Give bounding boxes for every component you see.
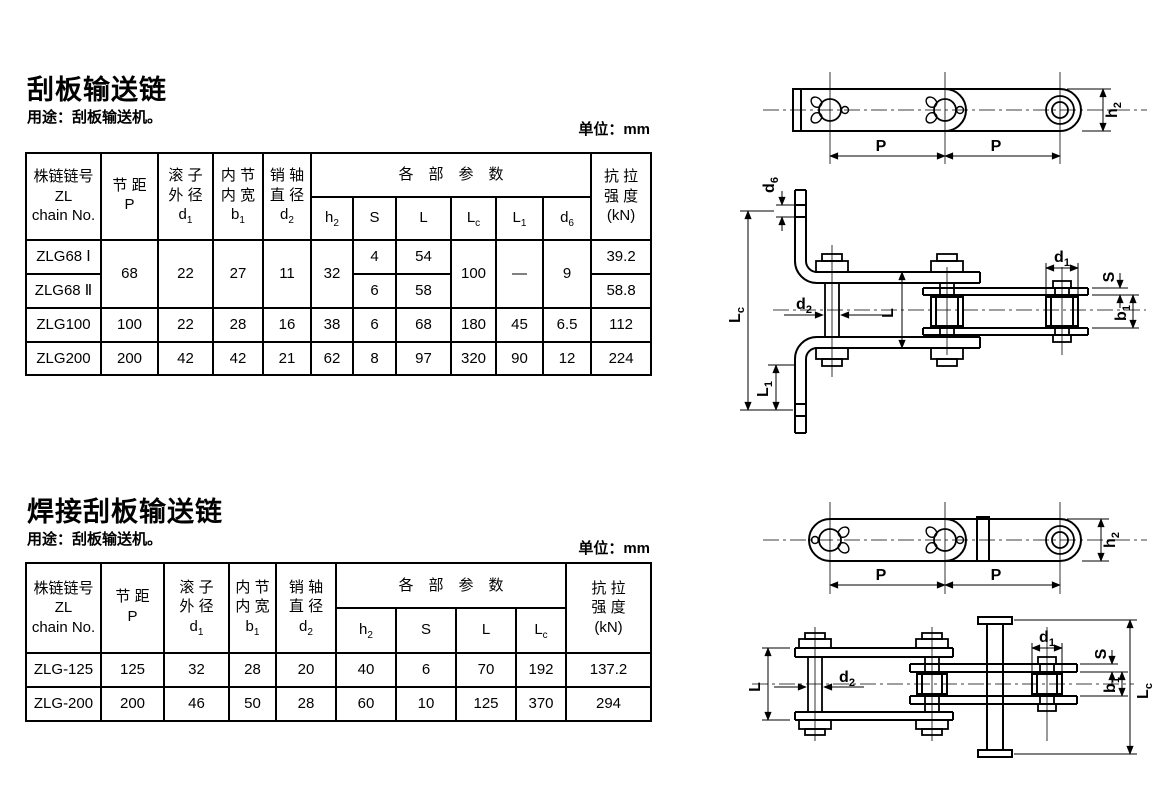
col-header-chain-no: 株链链号 ZL chain No. [26,563,101,653]
dim-label-l: L [880,308,897,318]
dim-label-lc: Lc [727,307,747,323]
dim-label-d6: d6 [761,177,781,193]
col-header-roller-dia: 滚 子 外 径 d1 [164,563,229,653]
col-header-roller-dia: 滚 子 外 径 d1 [158,153,213,240]
dim-label-d1: d1 [1054,249,1070,269]
table-row: ZLG-200 200 46 50 28 60 10 125 370 294 [26,687,651,721]
cell-chain-no: ZLG68 Ⅱ [26,274,101,308]
dimension-d6 [776,191,795,231]
col-header-d6: d6 [543,197,591,240]
table-row: ZLG-125 125 32 28 20 40 6 70 192 137.2 [26,653,651,687]
dim-label-d2: d2 [839,669,855,689]
col-header-l1: L1 [496,197,543,240]
col-header-params-group: 各 部 参 数 [311,153,591,197]
col-header-s: S [396,608,456,653]
table-row: ZLG200 200 42 42 21 62 8 97 320 90 12 22… [26,342,651,375]
centerlines [773,245,1146,377]
col-header-inner-width: 内 节 内 宽 b1 [229,563,276,653]
col-header-l: L [396,197,451,240]
dim-label-l: L [747,682,764,692]
table-row: ZLG100 100 22 28 16 38 6 68 180 45 6.5 1… [26,308,651,342]
catalog-page: { "section1": { "title": "刮板输送链", "usage… [0,0,1158,791]
col-header-chain-no: 株链链号 ZL chain No. [26,153,101,240]
welded-bar [978,617,1012,757]
col-header-lc: Lc [516,608,566,653]
table-header-row-1: 株链链号 ZL chain No. 节 距 P 滚 子 外 径 d1 内 节 内… [26,153,651,197]
diagram-chain-side-view: P P h2 [755,60,1155,175]
section2-unit-label: 单位：mm [530,537,650,558]
col-header-l: L [456,608,516,653]
diagram-scraper-assembly: d6 Lc L1 d2 L d1 S b1 [718,165,1158,450]
dim-label-d2: d2 [796,296,812,316]
col-header-s: S [353,197,396,240]
inner-link-plates [923,288,1088,335]
diagram-welded-chain-side-view: P P h2 [755,492,1155,602]
dimension-lc [740,211,793,410]
table-row: ZLG68 Ⅰ 68 22 27 11 32 4 54 100 — 9 39.2 [26,240,651,274]
dim-label-p1: P [876,138,887,155]
col-header-inner-width: 内 节 内 宽 b1 [213,153,263,240]
section2-title: 焊接刮板输送链 [27,490,223,529]
dim-label-p2: P [991,567,1002,584]
dim-label-p1: P [876,567,887,584]
table-header-row-1: 株链链号 ZL chain No. 节 距 P 滚 子 外 径 d1 内 节 内… [26,563,651,608]
section2-usage: 用途：刮板输送机。 [27,528,162,549]
col-header-lc: Lc [451,197,496,240]
centerlines [763,72,1147,164]
col-header-pitch: 节 距 P [101,563,164,653]
col-header-pitch: 节 距 P [101,153,158,240]
col-header-strength: 抗 拉 强 度 (kN) [591,153,651,240]
cell-chain-no: ZLG-200 [26,687,101,721]
cell-chain-no: ZLG68 Ⅰ [26,240,101,274]
cell-chain-no: ZLG100 [26,308,101,342]
diagram-welded-assembly: L d2 d1 S b1 Lc [722,595,1158,791]
col-header-params-group: 各 部 参 数 [336,563,566,608]
dim-label-l1: L1 [755,381,775,397]
dim-label-s: S [1093,648,1110,659]
dim-label-p2: P [991,138,1002,155]
table-welded-scraper-chain: 株链链号 ZL chain No. 节 距 P 滚 子 外 径 d1 内 节 内… [25,562,652,722]
col-header-strength: 抗 拉 强 度 (kN) [566,563,651,653]
col-header-h2: h2 [311,197,353,240]
cell-chain-no: ZLG-125 [26,653,101,687]
section1-usage: 用途：刮板输送机。 [27,106,162,127]
dim-label-s: S [1101,271,1118,282]
dim-label-b1: b1 [1102,677,1122,693]
dim-label-lc: Lc [1135,683,1155,699]
col-header-pin-dia: 销 轴 直 径 d2 [276,563,336,653]
cell-chain-no: ZLG200 [26,342,101,375]
rollers [931,297,1078,326]
section1-unit-label: 单位：mm [530,118,650,139]
col-header-h2: h2 [336,608,396,653]
welded-bar [977,517,989,561]
col-header-pin-dia: 销 轴 直 径 d2 [263,153,311,240]
dim-label-b1: b1 [1113,305,1133,321]
table-scraper-chain: 株链链号 ZL chain No. 节 距 P 滚 子 外 径 d1 内 节 内… [25,152,652,376]
centerlines [763,502,1147,594]
section1-title: 刮板输送链 [27,68,167,107]
